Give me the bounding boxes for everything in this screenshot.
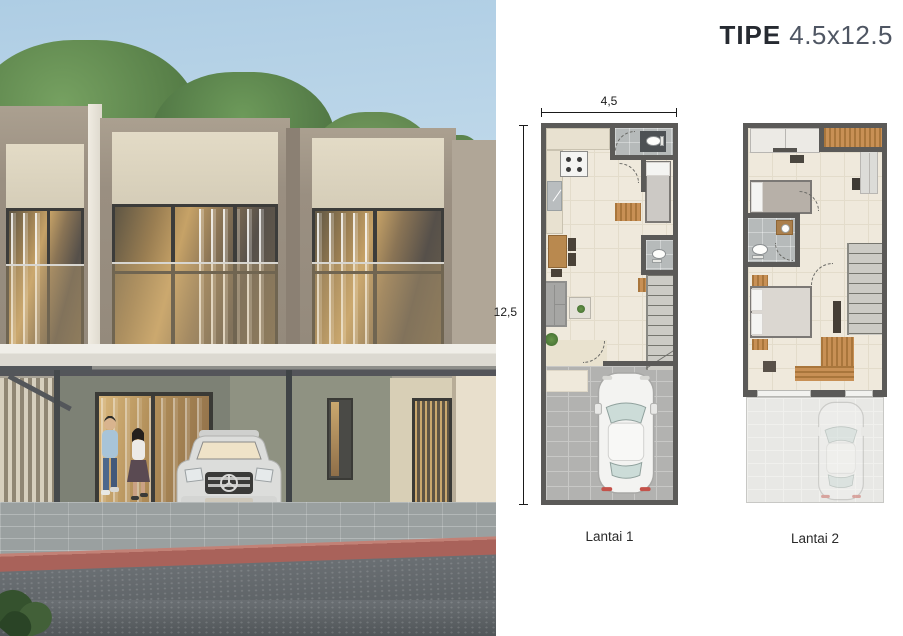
wall — [882, 123, 887, 397]
woman-top — [132, 440, 145, 460]
toilet-icon — [652, 249, 666, 259]
stucco-panel — [312, 138, 444, 208]
wall — [819, 147, 882, 152]
wall — [641, 235, 646, 275]
toilet-icon — [646, 136, 661, 146]
balcony-glass-rail — [312, 262, 444, 352]
car-windshield — [606, 403, 645, 423]
dimension-width-label: 4,5 — [541, 94, 677, 108]
house-photo — [0, 0, 496, 636]
nightstand — [752, 339, 768, 350]
kitchen-sink-icon — [547, 181, 562, 211]
wall — [743, 123, 887, 128]
wall — [641, 235, 678, 240]
car-roof — [608, 423, 643, 460]
woman-shoe — [131, 496, 139, 500]
car-taillight — [601, 487, 612, 491]
stove-icon — [560, 151, 588, 177]
sink-icon — [781, 224, 790, 233]
wall — [541, 500, 678, 505]
stucco-panel — [6, 144, 84, 208]
dimension-height-line — [523, 125, 524, 505]
dimension-tick — [519, 504, 528, 505]
ground-window — [327, 398, 353, 480]
man-shirt — [102, 430, 118, 458]
car-taillight — [640, 487, 651, 491]
page-title: TIPE4.5x12.5 — [719, 20, 893, 51]
bed-pillow — [751, 182, 763, 212]
bed-pillow — [646, 162, 670, 176]
title-size-value: 4.5x12.5 — [789, 20, 893, 50]
sofa — [544, 281, 567, 327]
entry-slat-door — [412, 398, 452, 505]
bed-pillow — [751, 289, 763, 311]
man-jeans — [103, 458, 109, 490]
wall — [743, 123, 748, 397]
plant-icon — [545, 333, 558, 346]
chair — [551, 269, 562, 277]
stucco-panel — [112, 132, 278, 204]
floor2-label: Lantai 2 — [743, 531, 887, 546]
stairs — [847, 243, 882, 335]
asphalt-road — [0, 600, 496, 636]
toilet-icon — [752, 244, 768, 255]
wall — [541, 123, 546, 505]
facade-pilaster — [286, 128, 300, 352]
dimension-tick — [541, 108, 542, 117]
tv-console — [833, 301, 841, 333]
window — [757, 390, 811, 397]
wall — [873, 390, 887, 397]
car-headlight — [185, 468, 203, 482]
wall — [748, 262, 800, 267]
toilet-tank — [660, 136, 664, 146]
car-mirror — [651, 403, 658, 414]
wall — [811, 390, 845, 397]
wall — [743, 390, 757, 397]
wardrobe — [750, 128, 820, 153]
stairs — [646, 275, 673, 370]
bed-pillow — [751, 313, 763, 335]
balcony-glass-rail — [6, 264, 84, 348]
chair — [568, 253, 576, 266]
facade-frame-setback — [452, 140, 496, 352]
coffee-table — [569, 297, 591, 319]
nightstand — [752, 275, 768, 286]
wall — [641, 160, 646, 192]
car-top-view — [594, 370, 658, 496]
wall — [603, 361, 678, 366]
car-mirror — [595, 403, 602, 414]
dimension-tick — [519, 125, 528, 126]
window — [845, 390, 873, 397]
wood-deck — [795, 366, 854, 381]
man-shoe — [101, 490, 110, 495]
balcony-deck — [824, 128, 882, 147]
floorplan-lantai-2 — [743, 123, 887, 505]
car-windshield — [197, 442, 261, 459]
plant-icon — [577, 305, 585, 313]
title-type-word: TIPE — [719, 20, 781, 50]
wardrobe — [860, 150, 878, 194]
tv-console — [852, 178, 860, 190]
dimension-width-line — [541, 112, 677, 113]
wall — [795, 213, 800, 267]
dimension-tick — [676, 108, 677, 117]
bench — [763, 361, 776, 372]
floor1-label: Lantai 1 — [541, 529, 678, 544]
toilet-tank — [652, 259, 662, 263]
wall — [673, 123, 678, 505]
kitchen-counter — [546, 128, 610, 150]
vanity — [776, 220, 793, 235]
tv-console — [790, 155, 804, 163]
dining-table — [548, 235, 567, 268]
doormat — [546, 370, 588, 392]
wall — [641, 270, 678, 275]
ghost-car-top-view — [815, 400, 867, 502]
wood-rug — [615, 203, 641, 221]
chair — [568, 238, 576, 251]
floorplan-lantai-1 — [541, 123, 678, 505]
car-headlight — [255, 468, 273, 482]
toilet-tank — [752, 255, 764, 259]
window-glow — [331, 402, 339, 476]
woman-skirt — [127, 460, 150, 482]
dimension-height-label: 12,5 — [490, 305, 517, 319]
carport-beam — [0, 366, 92, 374]
brochure-page: TIPE4.5x12.5 4,5 12,5 — [0, 0, 903, 636]
balcony-glass-rail — [112, 262, 278, 352]
wall — [748, 213, 800, 218]
